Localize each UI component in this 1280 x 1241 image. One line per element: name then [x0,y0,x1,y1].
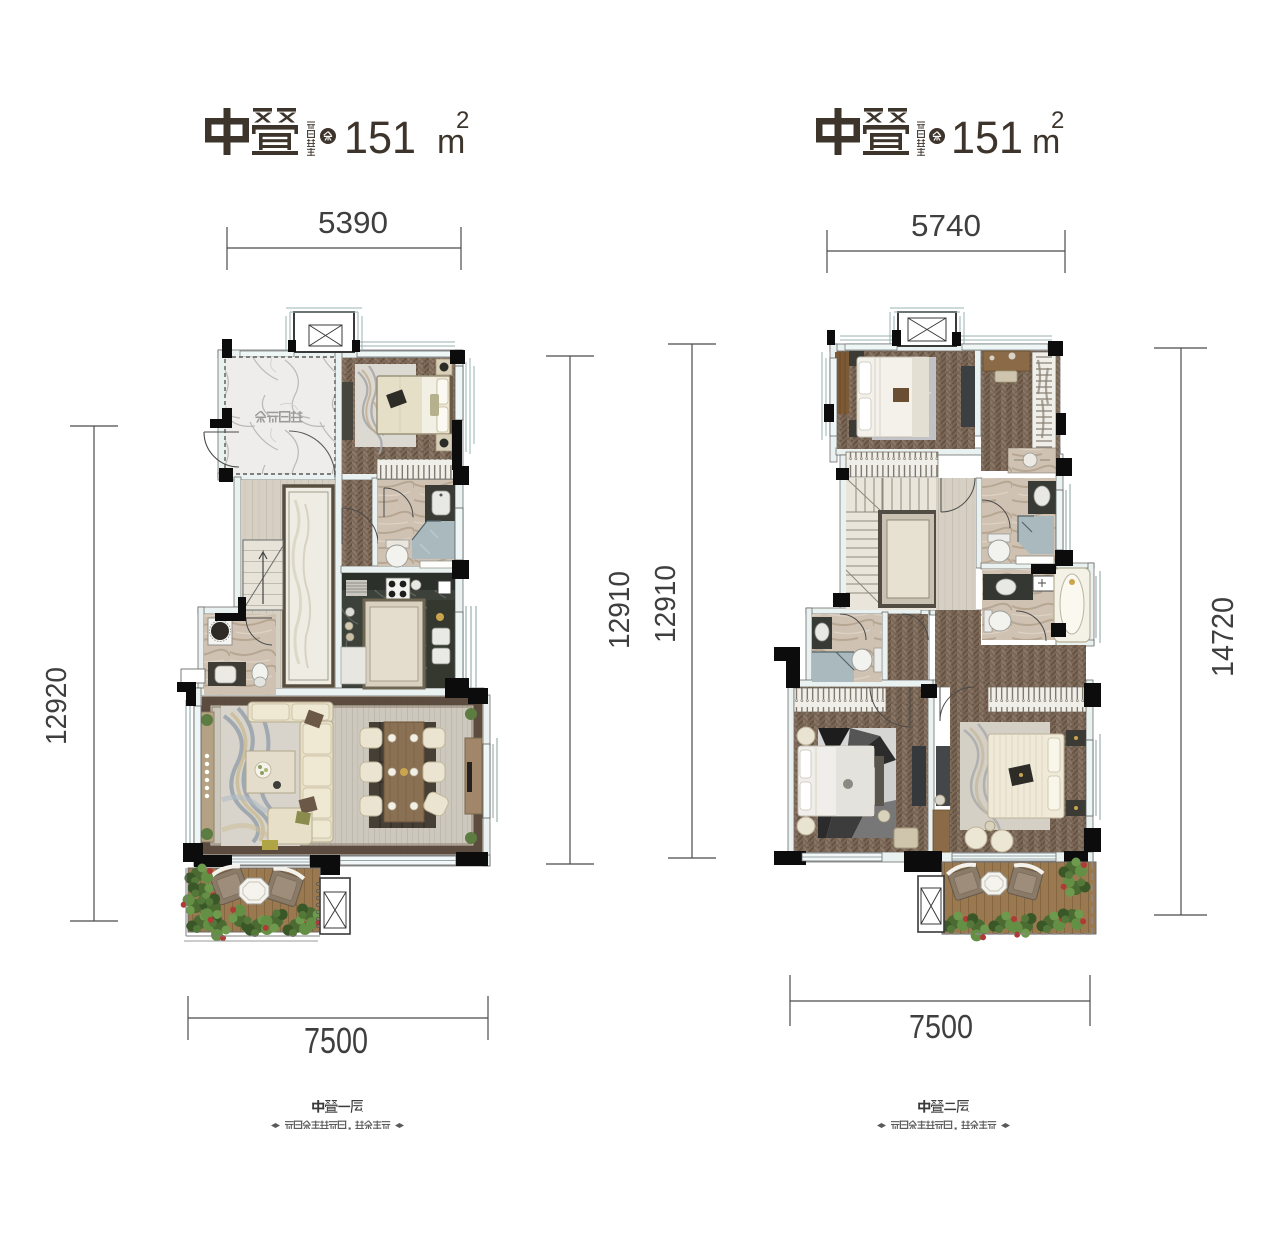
svg-text:151: 151 [951,112,1023,163]
svg-text:151: 151 [344,112,416,163]
svg-text:2: 2 [456,107,469,134]
svg-text:12910: 12910 [604,571,636,649]
svg-text:12920: 12920 [41,667,73,745]
svg-text:14720: 14720 [1205,597,1240,677]
svg-text:2: 2 [1051,107,1064,134]
svg-text:12910: 12910 [650,565,682,643]
svg-text:7500: 7500 [909,1008,973,1045]
svg-text:5740: 5740 [911,208,981,243]
svg-text:7500: 7500 [304,1020,368,1061]
svg-text:5390: 5390 [318,205,388,240]
